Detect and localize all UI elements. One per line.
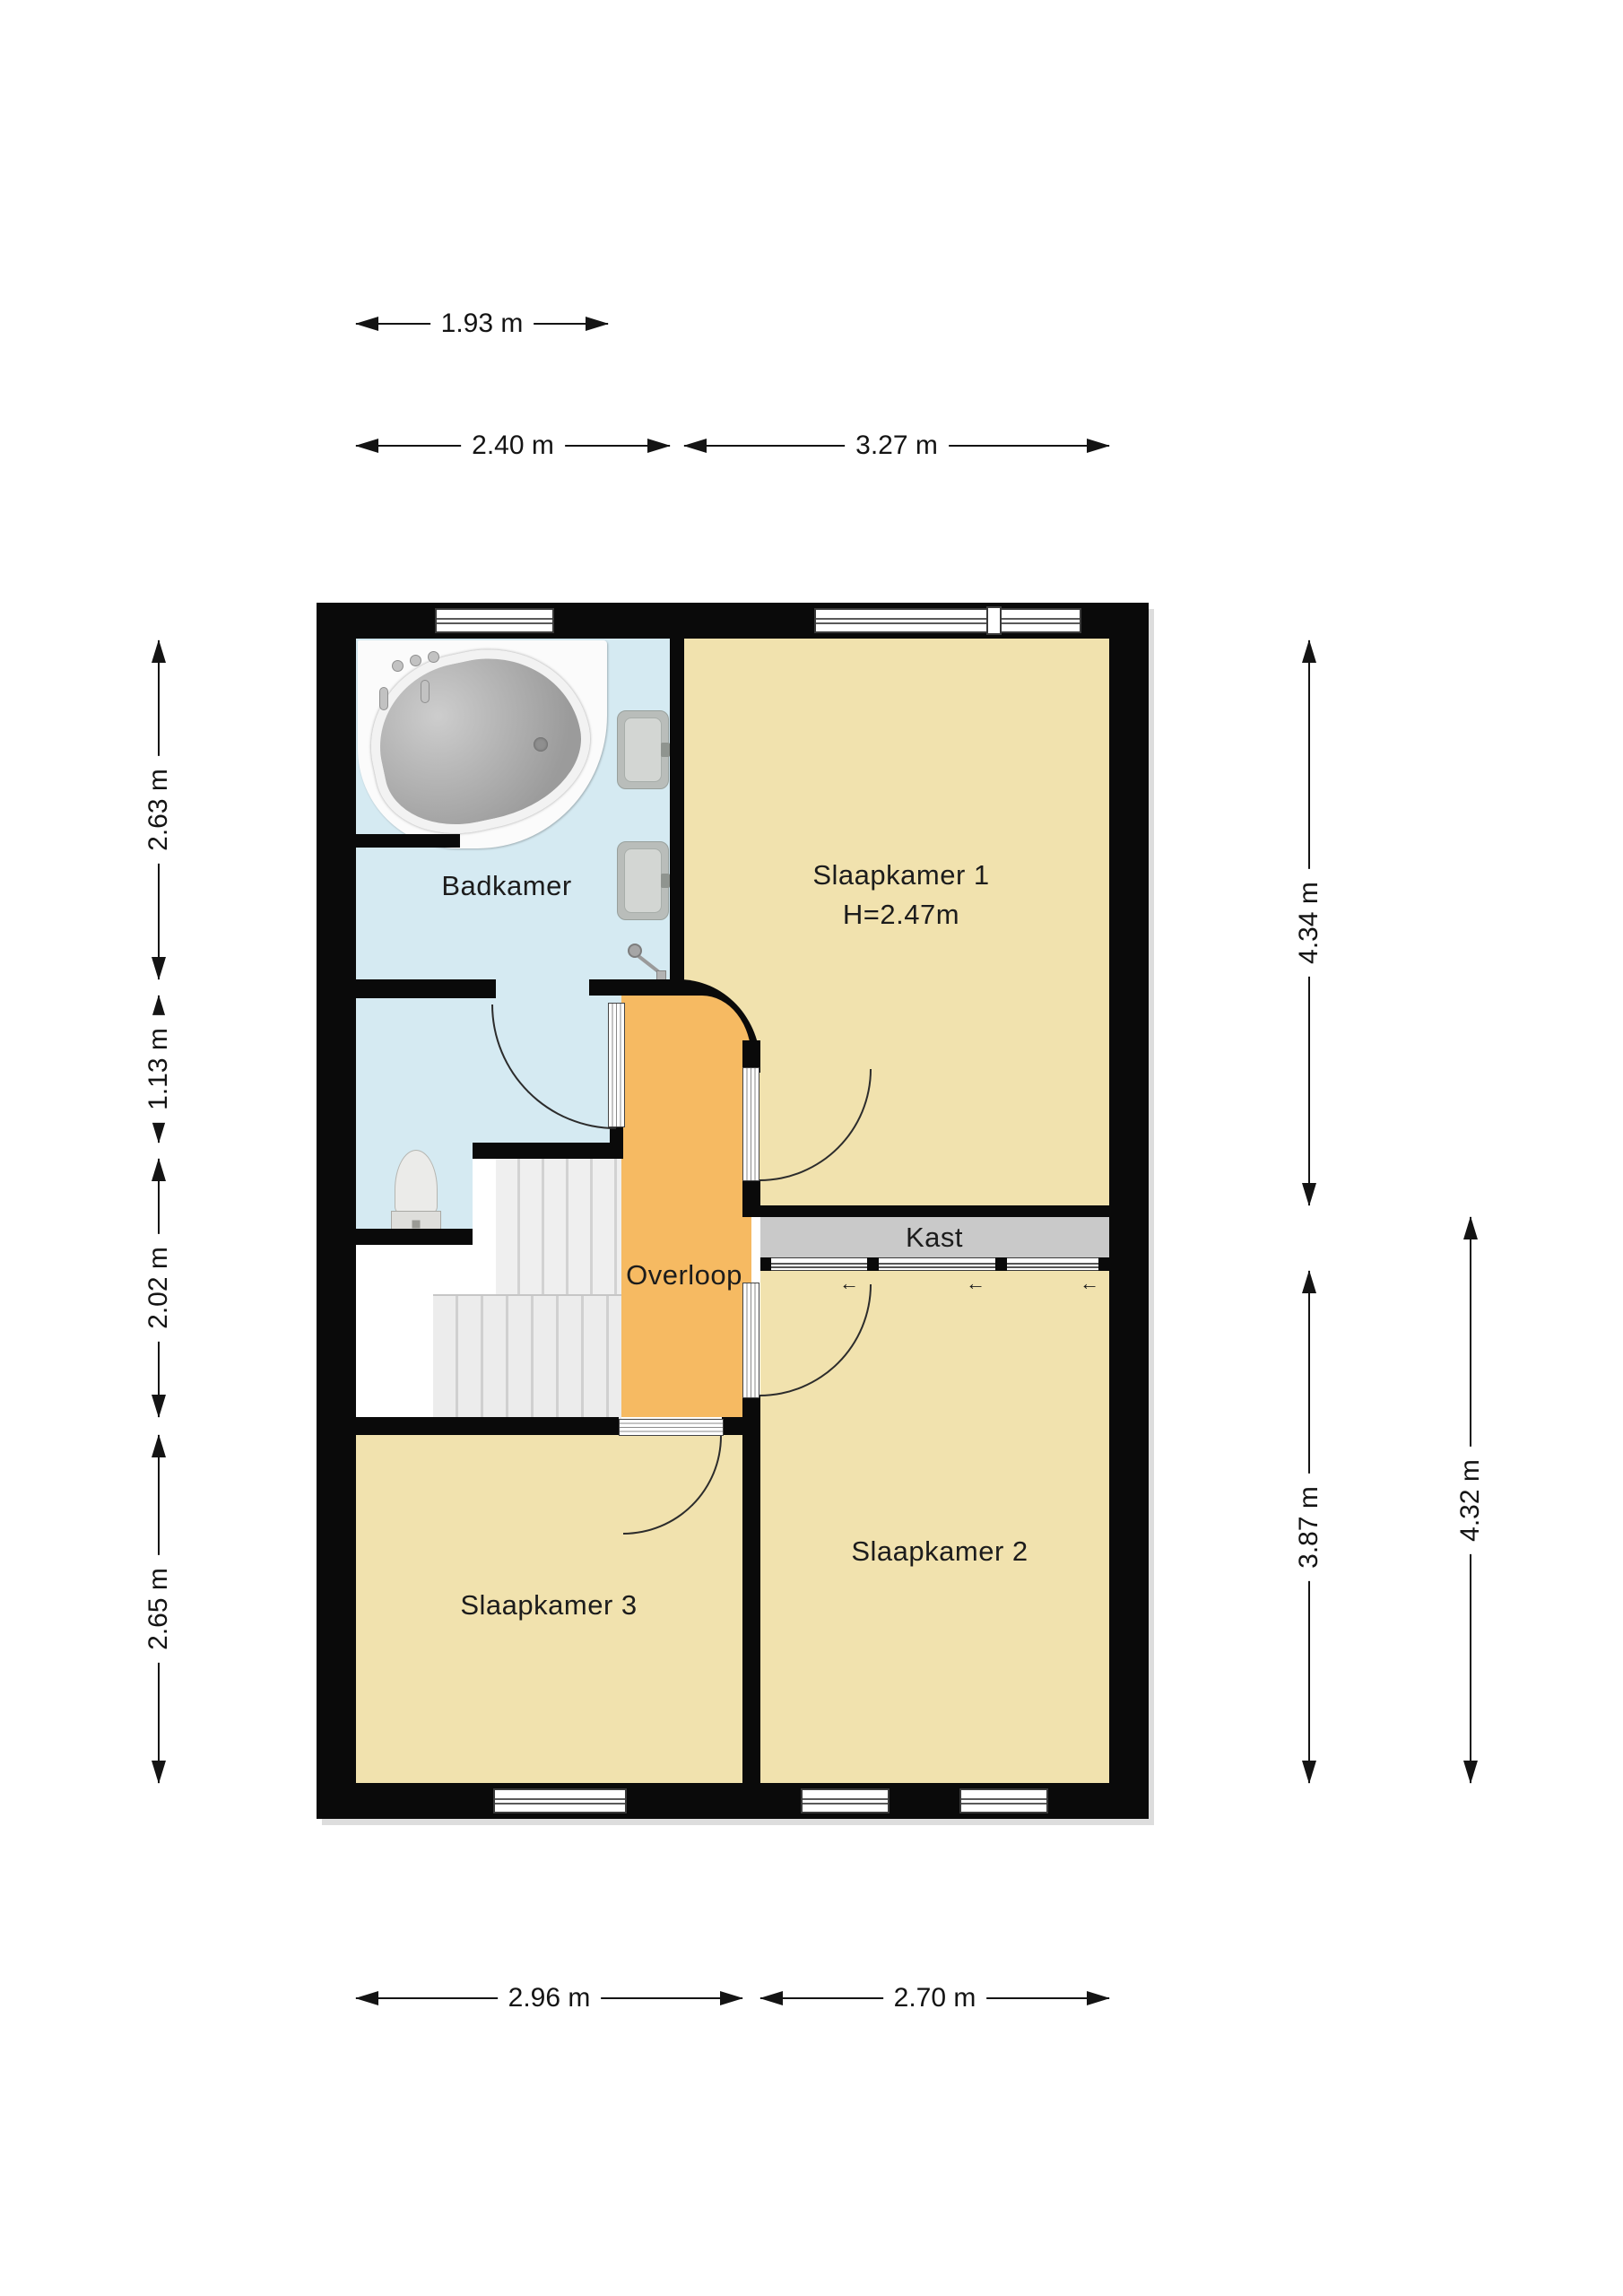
wall-kast-top [760, 1205, 1109, 1217]
window-slaapkamer2-left [801, 1788, 890, 1813]
dimension-label: 2.40 m [461, 429, 565, 463]
room-label-kast: Kast [906, 1222, 963, 1254]
arrowhead-right-icon [720, 1991, 743, 2005]
room-label-badkamer: Badkamer [441, 870, 571, 902]
dimension-left-4: 2.65 m [147, 1435, 170, 1783]
arrowhead-down-icon [152, 1120, 166, 1144]
wall-slaapkamer3-top-right [722, 1417, 742, 1435]
wall-overloop-right-lower [742, 1396, 760, 1435]
arrowhead-right-icon [1087, 439, 1110, 453]
arrowhead-left-icon [683, 439, 707, 453]
bathtub-faucet-icon [410, 655, 421, 666]
arrowhead-up-icon [1463, 1216, 1478, 1239]
room-label-slaapkamer2: Slaapkamer 2 [851, 1535, 1028, 1568]
wall-overloop-right-upper [742, 1040, 760, 1067]
overloop-floor [621, 996, 751, 1417]
dimension-right-3: 4.32 m [1459, 1217, 1482, 1783]
dimension-right-2: 3.87 m [1298, 1271, 1321, 1783]
arrowhead-right-icon [647, 439, 671, 453]
kast-track-divider [995, 1257, 1007, 1271]
kast-track-divider [760, 1257, 771, 1271]
arrowhead-up-icon [152, 639, 166, 663]
room-label-overloop: Overloop [626, 1259, 742, 1291]
wall-exterior-right [1109, 603, 1149, 1819]
door-slaapkamer1 [742, 1067, 759, 1181]
wall-slaapkamer2-slaapkamer3 [742, 1435, 760, 1783]
dimension-label: 2.96 m [498, 1981, 602, 2015]
slide-direction-arrow-icon: ← [966, 1274, 985, 1293]
room-label-slaapkamer3: Slaapkamer 3 [460, 1589, 637, 1622]
room-label-slaapkamer1-height: H=2.47m [843, 899, 959, 931]
window-slaapkamer3 [493, 1788, 627, 1813]
dimension-label: 4.32 m [1454, 1447, 1488, 1554]
kast-sliding-track [760, 1257, 1109, 1271]
arrowhead-right-icon [1087, 1991, 1110, 2005]
wall-stairwell-top [473, 1143, 623, 1159]
dimension-label: 2.70 m [883, 1981, 987, 2015]
wall-badkamer-slaapkamer1 [670, 639, 684, 979]
window-slaapkamer1 [814, 608, 1081, 633]
arrowhead-down-icon [152, 1395, 166, 1418]
dimension-right-1: 4.34 m [1298, 640, 1321, 1205]
wall-slaapkamer3-top-left [317, 1417, 619, 1435]
shower-head-icon [628, 944, 642, 958]
dimension-label: 3.87 m [1292, 1474, 1326, 1581]
dimension-top-1: 1.93 m [356, 312, 608, 335]
wall-shower-stub [356, 979, 496, 998]
bathtub-faucet-icon [392, 660, 404, 672]
dimension-top-2: 2.40 m [356, 434, 670, 457]
washbasin-1 [617, 710, 669, 789]
wall-bathtub-stub [356, 834, 460, 848]
window-slaapkamer2-right [959, 1788, 1048, 1813]
dimension-left-3: 2.02 m [147, 1159, 170, 1417]
washbasin-2 [617, 841, 669, 920]
door-slaapkamer3 [619, 1419, 724, 1436]
dimension-bottom-2: 2.70 m [760, 1987, 1109, 2010]
wall-exterior-left [317, 603, 356, 1819]
dimension-label: 1.13 m [142, 1015, 176, 1123]
wall-overloop-top [589, 979, 684, 996]
arrowhead-up-icon [152, 1158, 166, 1181]
stairs-upper-flight [496, 1159, 621, 1294]
wall-overloop-right-mid [742, 1179, 760, 1217]
wall-toilet-nook-bottom [356, 1229, 473, 1245]
window-badkamer [435, 608, 554, 633]
dimension-bottom-1: 2.96 m [356, 1987, 742, 2010]
arrowhead-left-icon [355, 1991, 378, 2005]
arrowhead-up-icon [1302, 639, 1316, 663]
arrowhead-left-icon [355, 317, 378, 331]
dimension-top-3: 3.27 m [684, 434, 1109, 457]
dimension-left-2: 1.13 m [147, 996, 170, 1143]
slide-direction-arrow-icon: ← [1080, 1274, 1099, 1293]
floorplan-canvas: 1.93 m 2.40 m 3.27 m 2.96 m 2.70 m 2.63 … [0, 0, 1623, 2296]
door-slaapkamer2 [742, 1283, 759, 1398]
dimension-label: 3.27 m [845, 429, 949, 463]
dimension-label: 1.93 m [430, 307, 534, 341]
room-label-slaapkamer1: Slaapkamer 1 [812, 859, 989, 891]
dimension-label: 4.34 m [1292, 869, 1326, 977]
arrowhead-left-icon [759, 1991, 783, 2005]
bathtub-handle-icon [421, 680, 430, 703]
arrowhead-left-icon [355, 439, 378, 453]
window-mullion [986, 606, 1002, 635]
arrowhead-up-icon [1302, 1270, 1316, 1293]
dimension-label: 2.02 m [142, 1234, 176, 1342]
arrowhead-up-icon [152, 1434, 166, 1457]
dimension-label: 2.63 m [142, 756, 176, 864]
arrowhead-down-icon [1302, 1183, 1316, 1206]
bathtub-faucet-icon [428, 651, 439, 663]
arrowhead-right-icon [586, 317, 609, 331]
arrowhead-down-icon [152, 1761, 166, 1784]
arrowhead-down-icon [1302, 1761, 1316, 1784]
arrowhead-down-icon [1463, 1761, 1478, 1784]
stairs-lower-flight [433, 1294, 621, 1419]
arrowhead-up-icon [152, 995, 166, 1018]
bathtub-drain-icon [534, 737, 548, 752]
arrowhead-down-icon [152, 957, 166, 980]
kast-track-divider [867, 1257, 879, 1271]
dimension-label: 2.65 m [142, 1555, 176, 1663]
bathtub-handle-icon [379, 687, 388, 710]
dimension-left-1: 2.63 m [147, 640, 170, 979]
door-badkamer [608, 1003, 625, 1127]
kast-track-divider [1098, 1257, 1109, 1271]
